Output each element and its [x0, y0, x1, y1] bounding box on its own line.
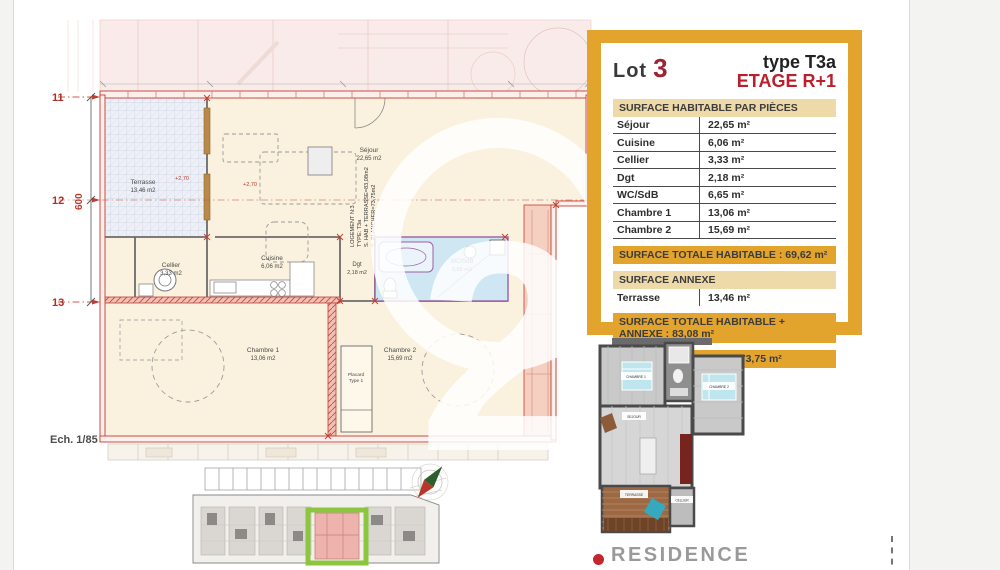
- svg-text:Chambre 2: Chambre 2: [384, 347, 417, 354]
- svg-text:600: 600: [74, 193, 85, 210]
- table-row: WC/SdB 6,65 m²: [613, 187, 836, 205]
- table-row: Cuisine 6,06 m²: [613, 134, 836, 152]
- main-floor-plan: 11 12 13 600 Terrasse 13,46 m2 +2,70 Cel…: [38, 14, 600, 466]
- table-row: Dgt 2,18 m²: [613, 169, 836, 187]
- scale-label: Ech. 1/85: [50, 434, 98, 446]
- svg-text:Cellier: Cellier: [162, 262, 181, 269]
- etage-label: ETAGE R+1: [737, 72, 836, 91]
- svg-text:2,18 m2: 2,18 m2: [347, 270, 367, 276]
- floorplan-3d-render: CHAMBRE 1 CHAMBRE 2 SEJOUR: [592, 338, 747, 544]
- neighbour-unit-above: [68, 20, 592, 96]
- svg-text:TERRASSE: TERRASSE: [625, 493, 644, 497]
- svg-text:13,06 m2: 13,06 m2: [250, 356, 276, 362]
- svg-text:Terrasse: Terrasse: [131, 179, 156, 186]
- svg-text:6,06 m2: 6,06 m2: [261, 264, 283, 270]
- svg-text:S. HAB + TERRASSE=83,08m2: S. HAB + TERRASSE=83,08m2: [364, 167, 370, 247]
- svg-text:Dgt: Dgt: [352, 262, 362, 268]
- kitchen-island: [308, 147, 332, 175]
- key-site-plan: [183, 455, 455, 570]
- svg-text:3,33 m2: 3,33 m2: [160, 271, 182, 277]
- svg-text:LOGEMENT N:3: LOGEMENT N:3: [350, 205, 356, 247]
- render-chambre2: CHAMBRE 2: [693, 356, 743, 434]
- type-label: type T3a: [737, 53, 836, 72]
- table-row: Cellier 3,33 m²: [613, 152, 836, 170]
- svg-text:Type 1: Type 1: [349, 378, 364, 384]
- svg-text:15,69 m2: 15,69 m2: [387, 356, 413, 362]
- svg-text:Chambre 1: Chambre 1: [247, 347, 280, 354]
- logo-text: RESIDENCE: [611, 544, 750, 567]
- svg-text:CHAMBRE 2: CHAMBRE 2: [709, 385, 729, 389]
- svg-text:13,46 m2: 13,46 m2: [130, 188, 156, 194]
- svg-text:+2,70: +2,70: [243, 182, 257, 188]
- table-row: Terrasse 13,46 m²: [613, 289, 836, 306]
- terrace-area: [104, 98, 207, 237]
- render-bathroom: [665, 343, 693, 401]
- svg-text:12: 12: [52, 195, 64, 207]
- svg-text:Placard: Placard: [348, 372, 365, 378]
- svg-text:13: 13: [52, 297, 64, 309]
- render-chambre1: CHAMBRE 1: [600, 346, 665, 406]
- svg-text:+2,70: +2,70: [175, 176, 189, 182]
- lot-label: Lot: [613, 60, 647, 82]
- legend-title: Lot3 type T3a ETAGE R+1: [613, 53, 836, 91]
- svg-text:22,65 m2: 22,65 m2: [356, 156, 382, 162]
- total-habitable-band: SURFACE TOTALE HABITABLE : 69,62 m²: [613, 246, 836, 264]
- svg-text:Cuisine: Cuisine: [261, 255, 283, 262]
- side-credit-marks: [891, 536, 895, 570]
- svg-text:CHAMBRE 1: CHAMBRE 1: [626, 375, 646, 379]
- svg-text:Séjour: Séjour: [360, 147, 380, 154]
- svg-text:SEJOUR: SEJOUR: [627, 415, 641, 419]
- surface-table-header: SURFACE HABITABLE PAR PIÈCES: [613, 99, 836, 117]
- render-sejour: SEJOUR: [600, 406, 692, 488]
- surface-table: Séjour 22,65 m² Cuisine 6,06 m² Cellier …: [613, 117, 836, 240]
- sheet: 11 12 13 600 Terrasse 13,46 m2 +2,70 Cel…: [0, 0, 1000, 570]
- annexe-header-band: SURFACE ANNEXE: [613, 271, 836, 289]
- highlighted-lot: [308, 510, 366, 563]
- svg-text:CELLIER: CELLIER: [675, 499, 689, 503]
- lot-legend-panel: Lot3 type T3a ETAGE R+1 SURFACE HABITABL…: [587, 30, 862, 335]
- svg-text:TYPE: T3a: TYPE: T3a: [357, 219, 363, 247]
- table-row: Chambre 1 13,06 m²: [613, 204, 836, 222]
- lot-number: 3: [653, 53, 668, 83]
- table-row: Chambre 2 15,69 m²: [613, 222, 836, 240]
- svg-text:2: 2: [418, 178, 585, 466]
- watermark-logo: 2: [386, 133, 600, 466]
- logo-dot-icon: [593, 554, 604, 565]
- table-row: Séjour 22,65 m²: [613, 117, 836, 135]
- residence-logo: RESIDENCE: [593, 544, 823, 570]
- svg-text:11: 11: [52, 92, 64, 104]
